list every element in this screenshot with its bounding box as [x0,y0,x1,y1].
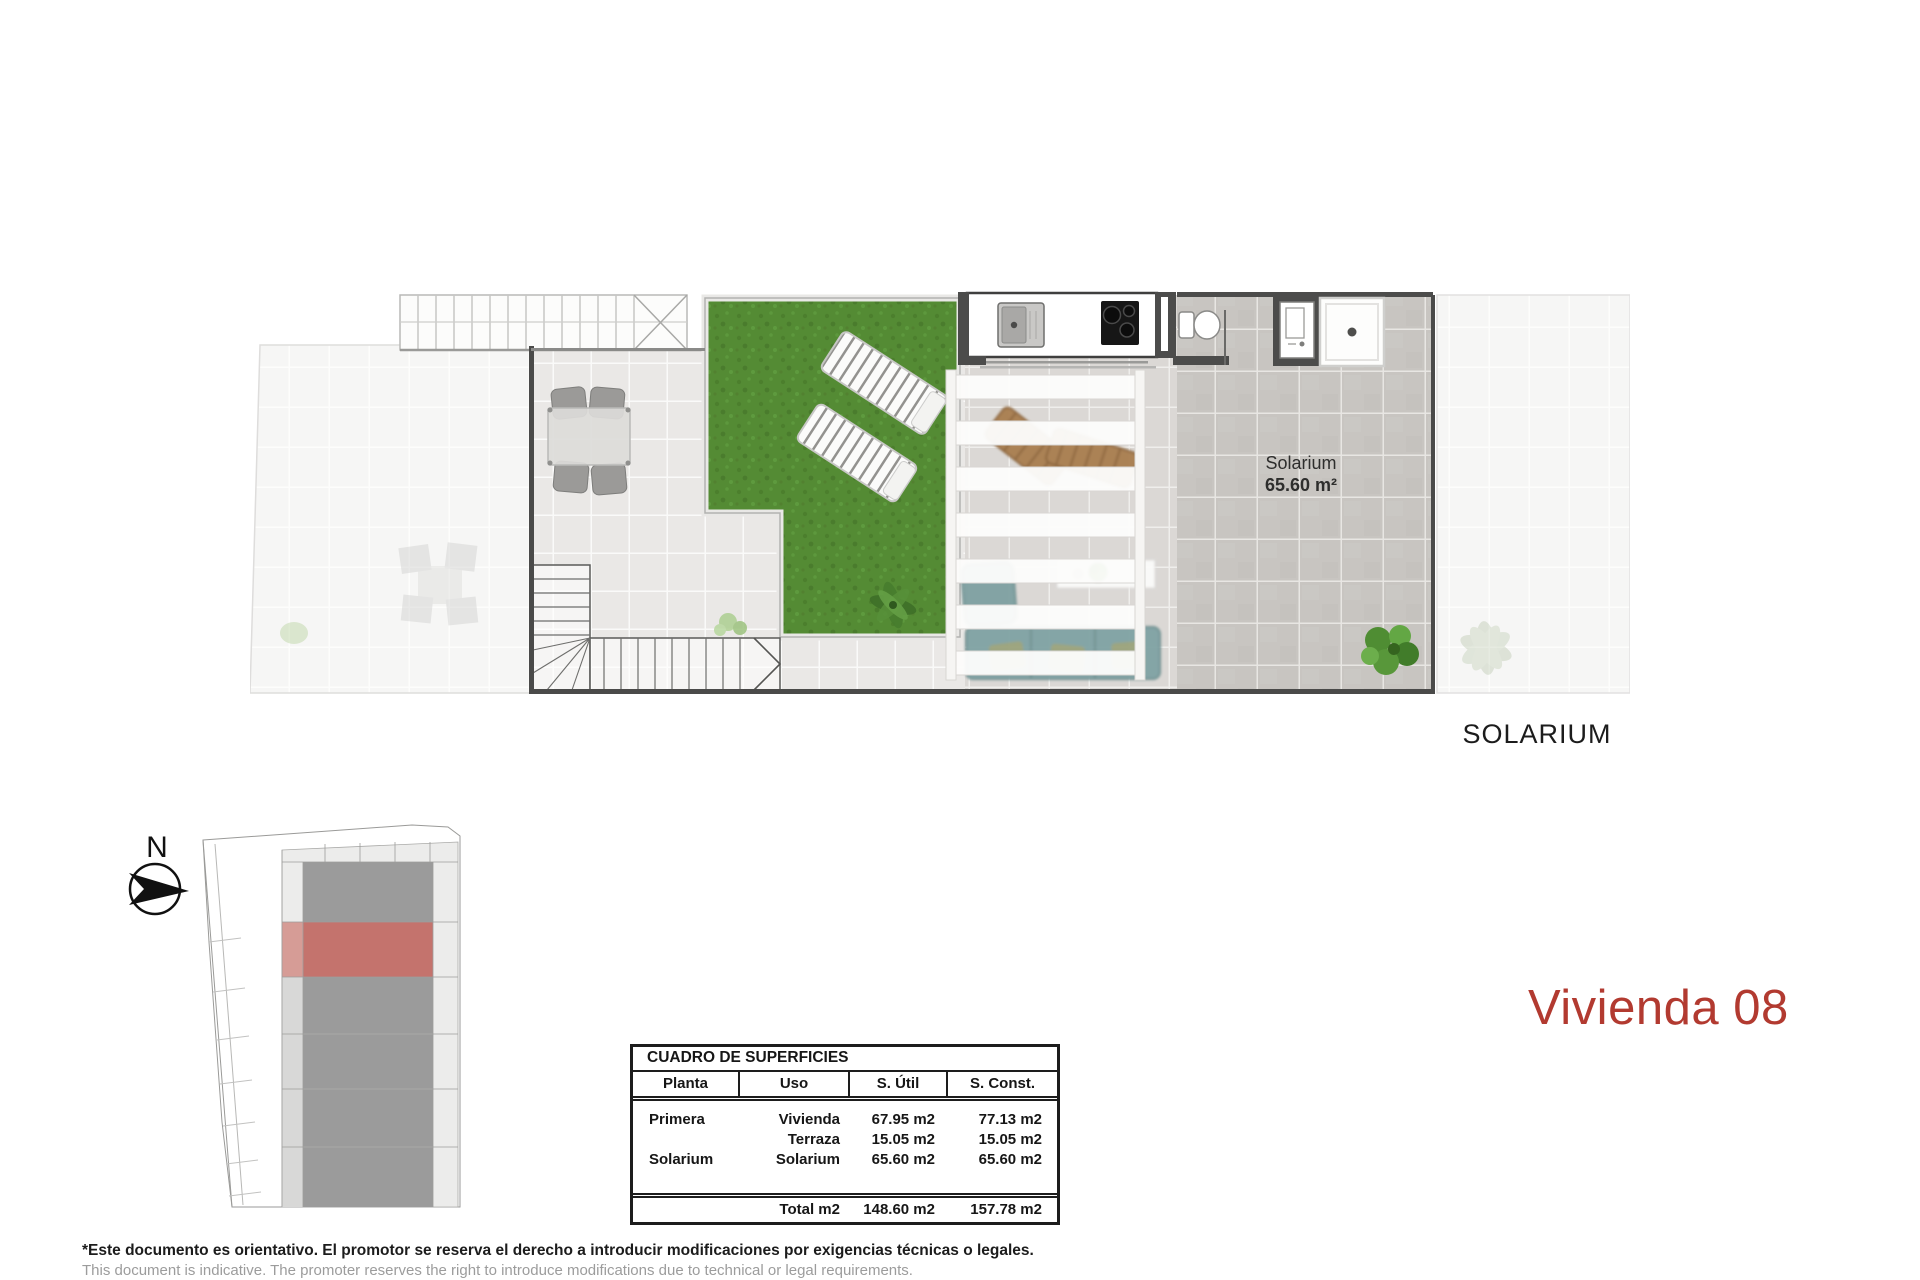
faded-bush [280,622,308,644]
floor-plan: Solarium 65.60 m² [250,288,1630,700]
cell-total-sconst: 157.78 m2 [948,1201,1057,1218]
site-key-plan [195,822,475,1214]
induction-hob [1101,301,1139,345]
compass-label: N [146,831,168,864]
cell-sutil: 65.60 m2 [850,1150,948,1170]
neighbour-terrace-left [250,345,531,693]
col-header-sutil: S. Útil [850,1072,948,1096]
cell-sutil: 67.95 m2 [850,1110,948,1130]
shower-fixture [1280,302,1314,358]
surfaces-table-body: Primera Vivienda 67.95 m2 77.13 m2 Terra… [633,1101,1057,1193]
table-row: Primera Vivienda 67.95 m2 77.13 m2 [633,1110,1057,1130]
col-header-sconst: S. Const. [948,1072,1057,1096]
room-area: 65.60 m² [1265,475,1337,495]
brochure-page: Solarium 65.60 m² SOLARIUM N [0,0,1920,1280]
north-compass: N [115,827,195,922]
col-header-planta: Planta [633,1072,740,1096]
access-stairs-top [400,295,705,350]
north-arrow-icon [129,873,189,905]
building-block [282,842,458,1207]
cell-sutil: 15.05 m2 [850,1130,948,1150]
cell-sconst: 65.60 m2 [948,1150,1057,1170]
cell-planta: Solarium [633,1150,740,1170]
disclaimer: *Este documento es orientativo. El promo… [82,1241,1034,1280]
shower-tray [1320,298,1384,366]
cell-planta [633,1130,740,1150]
cell-planta: Primera [633,1110,740,1130]
disclaimer-es: *Este documento es orientativo. El promo… [82,1241,1034,1261]
surfaces-table: CUADRO DE SUPERFICIES Planta Uso S. Útil… [630,1044,1060,1225]
cell-uso: Terraza [740,1130,850,1150]
cell-sconst: 77.13 m2 [948,1110,1057,1130]
unit-title: Vivienda 08 [1528,980,1789,1036]
disclaimer-en: This document is indicative. The promote… [82,1261,1034,1280]
units-rows [303,977,433,1207]
cell-sconst: 15.05 m2 [948,1130,1057,1150]
neighbour-solarium-right [1437,295,1630,693]
kitchen-sink [998,303,1044,347]
room-name: Solarium [1265,453,1336,473]
cell-total-sutil: 148.60 m2 [850,1201,948,1218]
col-header-uso: Uso [740,1072,850,1096]
surfaces-table-total-row: Total m2 148.60 m2 157.78 m2 [633,1193,1057,1222]
cell-uso: Solarium [740,1150,850,1170]
surfaces-table-header: Planta Uso S. Útil S. Const. [633,1072,1057,1101]
highlighted-unit [303,922,433,977]
units-row [303,862,433,922]
outdoor-kitchen [967,293,1157,369]
cell-planta [633,1201,740,1218]
cell-uso: Vivienda [740,1110,850,1130]
table-row: Terraza 15.05 m2 15.05 m2 [633,1130,1057,1150]
cell-total-label: Total m2 [740,1201,850,1218]
surfaces-table-title: CUADRO DE SUPERFICIES [633,1047,1057,1072]
highlighted-unit-terrace [282,922,303,977]
table-row: Solarium Solarium 65.60 m2 65.60 m2 [633,1150,1057,1170]
section-caption: SOLARIUM [1452,719,1622,750]
